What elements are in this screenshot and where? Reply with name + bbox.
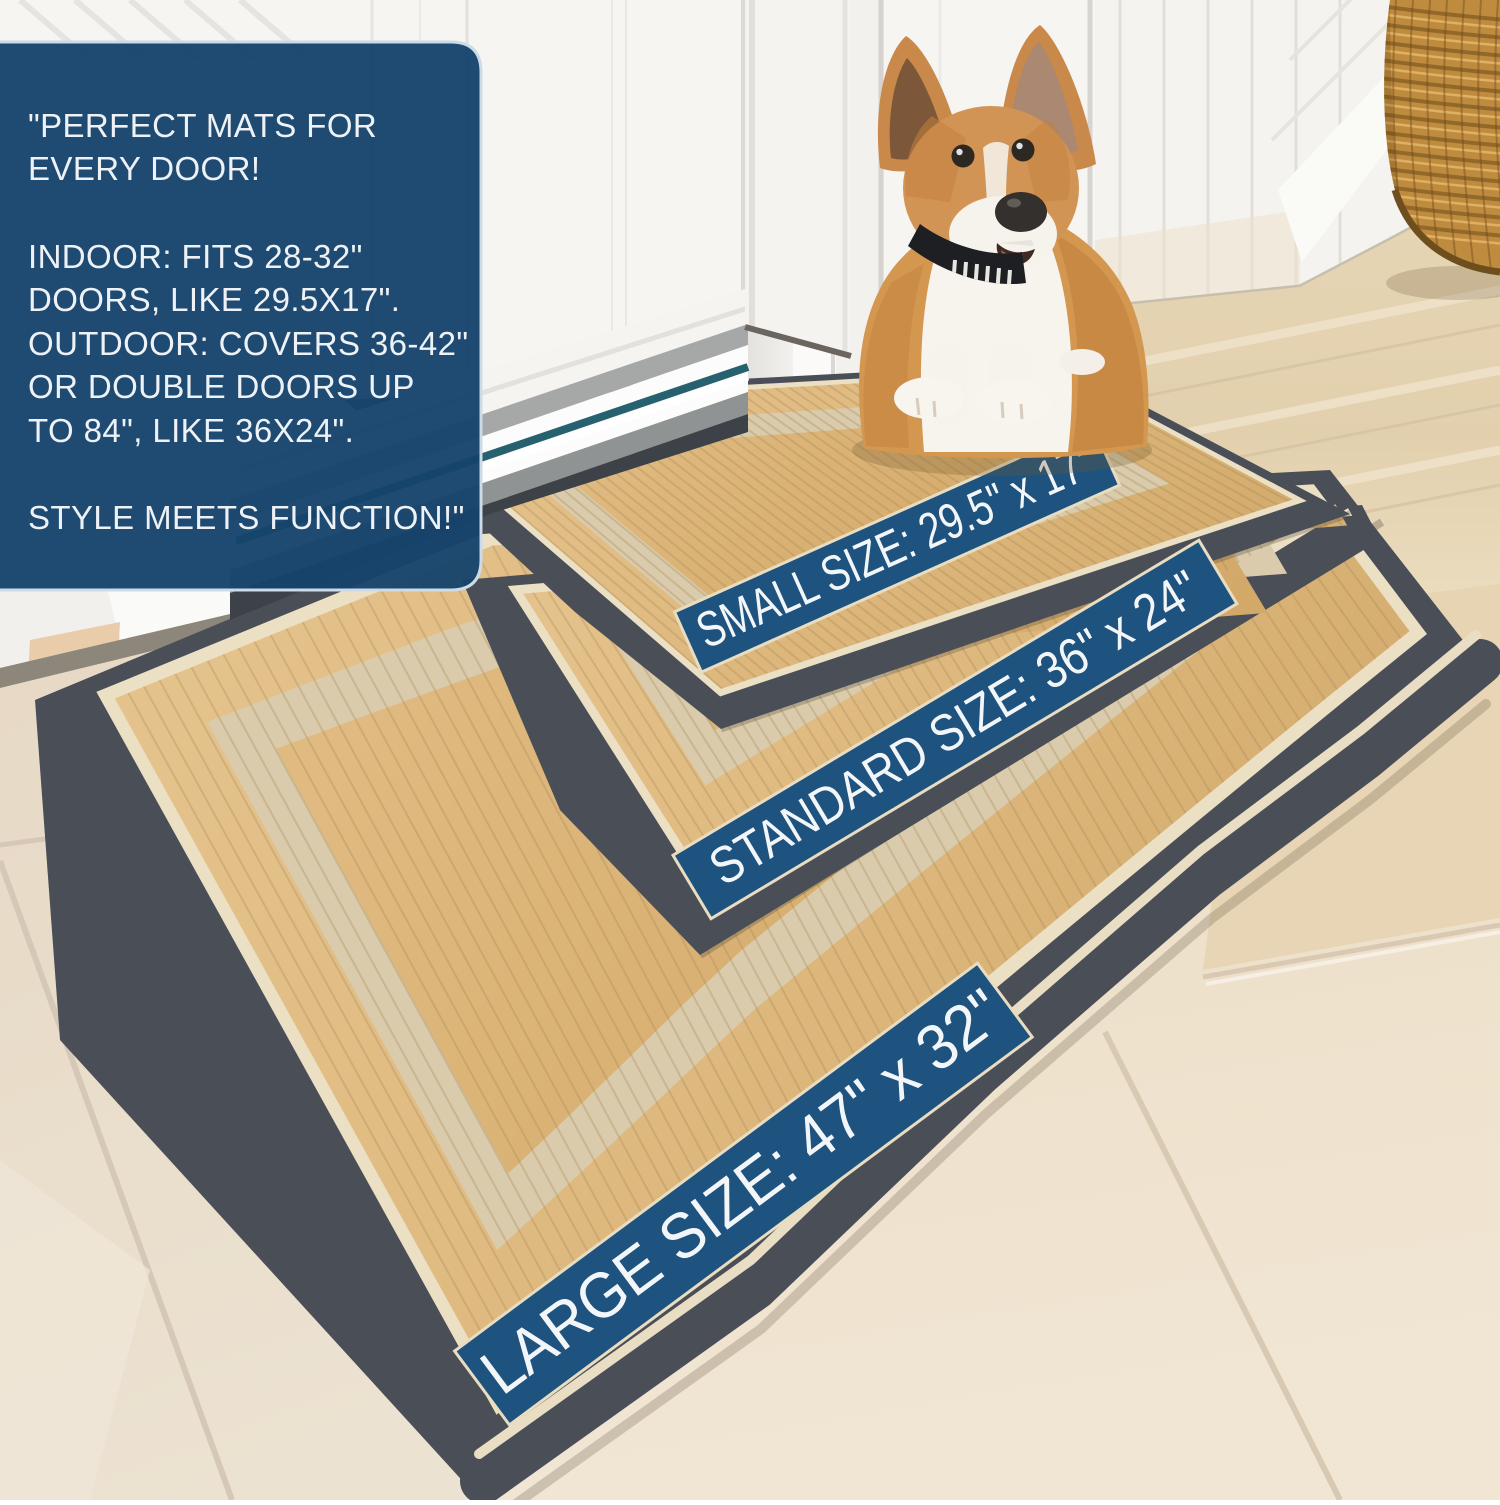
svg-text:OUTDOOR: COVERS 36-42": OUTDOOR: COVERS 36-42" [28, 325, 468, 362]
svg-text:OR DOUBLE DOORS UP: OR DOUBLE DOORS UP [28, 368, 415, 405]
svg-text:EVERY DOOR!: EVERY DOOR! [28, 150, 260, 187]
svg-text:TO 84", LIKE 36X24".: TO 84", LIKE 36X24". [28, 412, 354, 449]
svg-text:DOORS, LIKE 29.5X17".: DOORS, LIKE 29.5X17". [28, 281, 400, 318]
svg-text:STYLE MEETS FUNCTION!": STYLE MEETS FUNCTION!" [28, 499, 465, 536]
svg-text:INDOOR: FITS 28-32": INDOOR: FITS 28-32" [28, 238, 363, 275]
svg-text:"PERFECT MATS FOR: "PERFECT MATS FOR [28, 107, 377, 144]
